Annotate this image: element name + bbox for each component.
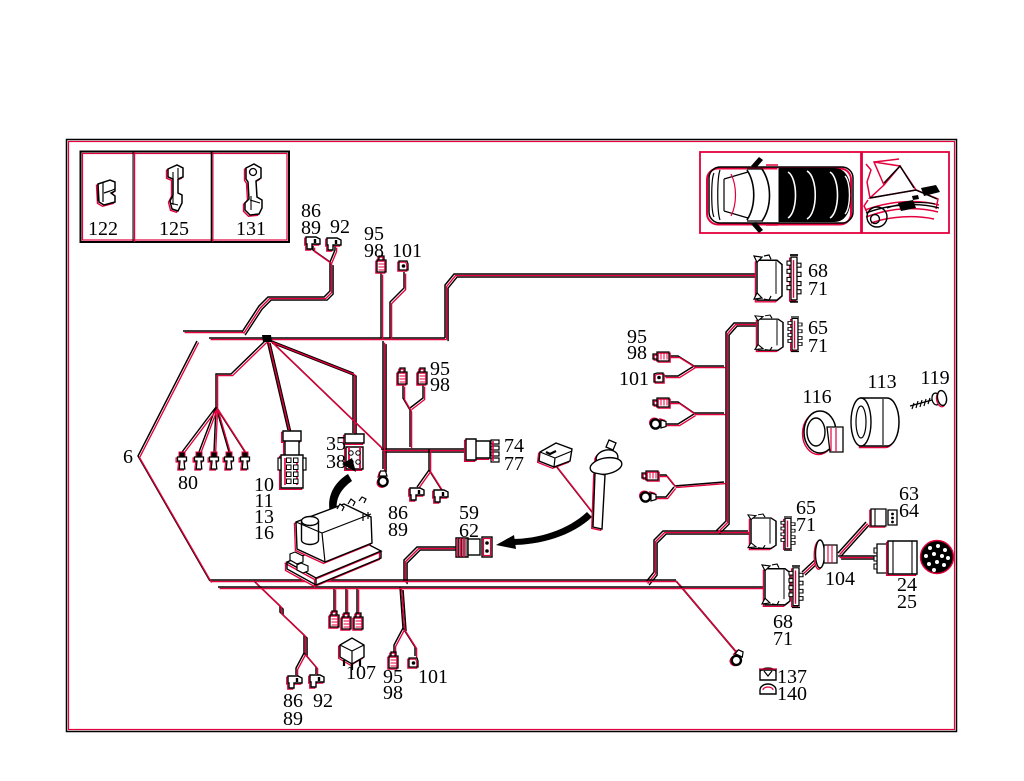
- svg-text:101: 101: [619, 368, 649, 390]
- svg-text:89: 89: [388, 519, 408, 541]
- svg-text:92: 92: [313, 690, 333, 712]
- svg-text:89: 89: [283, 708, 303, 730]
- svg-text:101: 101: [392, 240, 422, 262]
- svg-text:98: 98: [383, 682, 403, 704]
- svg-text:64: 64: [899, 500, 919, 522]
- svg-text:92: 92: [330, 216, 350, 238]
- svg-text:77: 77: [504, 453, 524, 475]
- svg-text:140: 140: [777, 683, 807, 705]
- svg-text:71: 71: [808, 335, 828, 357]
- svg-text:113: 113: [867, 371, 896, 393]
- svg-text:116: 116: [802, 386, 831, 408]
- svg-text:38: 38: [326, 451, 346, 473]
- svg-text:131: 131: [236, 218, 266, 240]
- svg-text:125: 125: [159, 218, 189, 240]
- svg-text:98: 98: [430, 374, 450, 396]
- svg-text:98: 98: [364, 240, 384, 262]
- svg-text:16: 16: [254, 522, 274, 544]
- svg-text:25: 25: [897, 591, 917, 613]
- svg-text:80: 80: [178, 472, 198, 494]
- svg-text:107: 107: [346, 662, 376, 684]
- svg-text:122: 122: [88, 218, 118, 240]
- svg-text:89: 89: [301, 217, 321, 239]
- svg-text:119: 119: [920, 367, 949, 389]
- svg-text:104: 104: [825, 568, 855, 590]
- svg-text:6: 6: [123, 446, 133, 468]
- svg-text:62: 62: [459, 520, 479, 542]
- svg-text:101: 101: [418, 666, 448, 688]
- svg-text:71: 71: [773, 628, 793, 650]
- svg-text:98: 98: [627, 342, 647, 364]
- svg-text:71: 71: [796, 514, 816, 536]
- svg-text:71: 71: [808, 278, 828, 300]
